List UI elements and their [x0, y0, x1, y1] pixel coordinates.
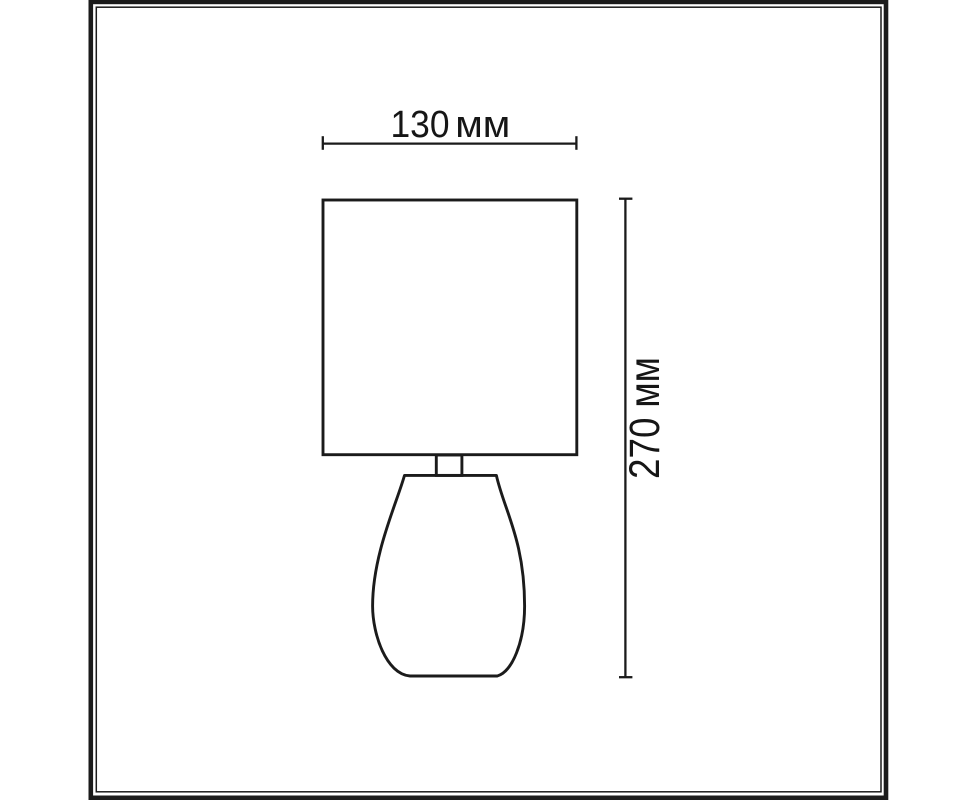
svg-text:мм: мм [621, 357, 669, 408]
svg-text:270: 270 [621, 418, 669, 480]
svg-text:130: 130 [391, 104, 450, 146]
svg-text:мм: мм [455, 104, 510, 146]
